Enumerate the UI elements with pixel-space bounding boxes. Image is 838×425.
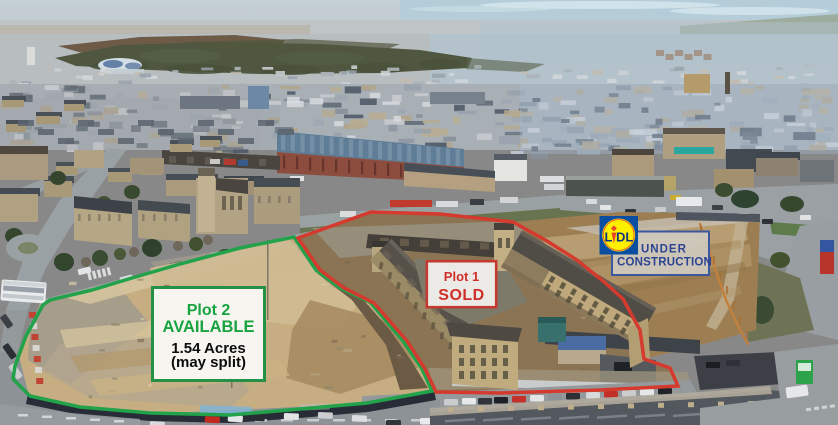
svg-text:Plot 2: Plot 2 <box>187 302 231 319</box>
svg-text:DL: DL <box>616 230 633 245</box>
svg-text:SOLD: SOLD <box>438 287 484 304</box>
svg-text:Plot 1: Plot 1 <box>444 269 479 284</box>
svg-text:L: L <box>605 230 613 245</box>
svg-text:AVAILABLE: AVAILABLE <box>163 318 255 336</box>
svg-text:UNDER: UNDER <box>641 244 687 256</box>
svg-text:(may split): (may split) <box>171 354 246 371</box>
svg-text:CONSTRUCTION: CONSTRUCTION <box>617 257 712 269</box>
